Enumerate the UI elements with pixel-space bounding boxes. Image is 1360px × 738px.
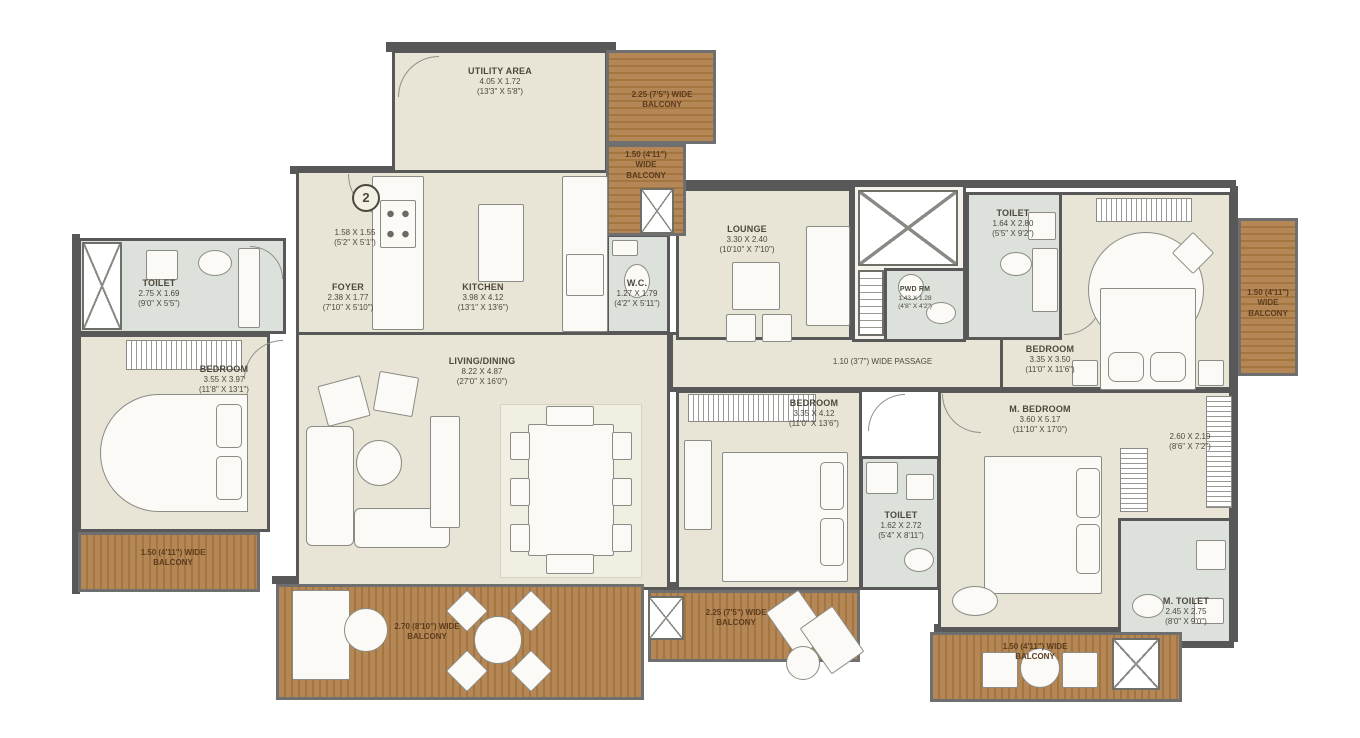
- floor-plan: 2 UTILITY AREA 4.05 X 1.72 (13'3" X 5'8"…: [0, 0, 1360, 738]
- washbasin: [612, 240, 638, 256]
- pillow: [820, 518, 844, 566]
- kitchen-island: [478, 204, 524, 282]
- room-dim-ft: (9'0" X 5'5"): [120, 299, 198, 309]
- dining-chair: [612, 432, 632, 460]
- room-dim-ft: (5'4" X 8'11"): [864, 531, 938, 541]
- balcony-label-line: 2.70 (8'10") WIDE: [368, 622, 486, 632]
- room-name: BEDROOM: [766, 398, 862, 409]
- tv-unit: [430, 416, 460, 528]
- room-dim-ft: (4'2" X 5'11"): [606, 299, 668, 309]
- dining-chair: [510, 432, 530, 460]
- pillow: [216, 404, 242, 448]
- bench: [952, 586, 998, 616]
- duct-shaft: [82, 242, 122, 330]
- washbasin: [146, 250, 178, 280]
- room-dim-m: 3.55 X 3.97: [178, 375, 270, 385]
- balcony-label-line: BALCONY: [108, 558, 238, 568]
- room-label-pwd-rm: PWD RM 1.43 X 1.28 (4'8" X 4'2"): [886, 286, 944, 311]
- wardrobe: [1206, 396, 1232, 508]
- room-label-lounge: LOUNGE 3.30 X 2.40 (10'10" X 7'10"): [702, 224, 792, 255]
- refrigerator: [566, 254, 604, 296]
- room-dim-ft: (11'0" X 13'6"): [766, 419, 862, 429]
- room-name: BEDROOM: [1002, 344, 1098, 355]
- room-dim-ft: (11'0" X 11'6"): [1002, 365, 1098, 375]
- room-dim-ft: (4'8" X 4'2"): [886, 303, 944, 311]
- room-dim-m: 2.38 X 1.77: [308, 293, 388, 303]
- ottoman: [726, 314, 756, 342]
- balcony-label-bottom-center: 2.25 (7'5") WIDE BALCONY: [680, 608, 792, 629]
- room-dim-m: 8.22 X 4.87: [428, 367, 536, 377]
- dining-chair: [546, 406, 594, 426]
- dining-chair: [510, 524, 530, 552]
- room-dim-m: 2.60 X 2.19: [1146, 432, 1234, 442]
- dining-chair: [612, 524, 632, 552]
- balcony-label-line: 1.50 (4'11"): [1240, 288, 1296, 298]
- room-name: TOILET: [864, 510, 938, 521]
- desk: [684, 440, 712, 530]
- nightstand: [1198, 360, 1224, 386]
- balcony-label-top-lower: 1.50 (4'11") WIDE BALCONY: [608, 150, 684, 181]
- outdoor-table: [786, 646, 820, 680]
- balcony-label-line: BALCONY: [972, 652, 1098, 662]
- room-label-toilet-left: TOILET 2.75 X 1.69 (9'0" X 5'5"): [120, 278, 198, 309]
- balcony-label-line: WIDE: [608, 160, 684, 170]
- balcony-label-line: WIDE: [1240, 298, 1296, 308]
- room-dim-m: 1.43 X 1.28: [886, 295, 944, 303]
- room-label-entrance-lobby: 1.58 X 1.55 (5'2" X 5'1"): [312, 228, 398, 248]
- room-dim-m: 1.64 X 2.80: [972, 219, 1054, 229]
- wardrobe: [1096, 198, 1192, 222]
- balcony-label-line: BALCONY: [612, 100, 712, 110]
- room-name: TOILET: [120, 278, 198, 289]
- balcony-label-bottom-right: 1.50 (4'11") WIDE BALCONY: [972, 642, 1098, 663]
- coffee-table: [356, 440, 402, 486]
- bath-counter: [238, 248, 260, 328]
- room-dim-ft: (8'0" X 9'0"): [1138, 617, 1234, 627]
- shower: [1196, 540, 1226, 570]
- room-dim-m: 1.58 X 1.55: [312, 228, 398, 238]
- dining-chair: [612, 478, 632, 506]
- passage-label: 1.10 (3'7") WIDE PASSAGE: [795, 357, 970, 366]
- stairs: [858, 270, 884, 336]
- toilet-fixture: [198, 250, 232, 276]
- room-dim-m: 4.05 X 1.72: [430, 77, 570, 87]
- balcony-label-top-upper: 2.25 (7'5") WIDE BALCONY: [612, 90, 712, 111]
- balcony-label-line: 1.50 (4'11"): [608, 150, 684, 160]
- elevator-shaft: [858, 190, 958, 266]
- room-label-wc: W.C. 1.27 X 1.79 (4'2" X 5'11"): [606, 278, 668, 309]
- room-name: LIVING/DINING: [428, 356, 536, 367]
- wardrobe: [1120, 448, 1148, 512]
- sofa: [806, 226, 850, 326]
- sofa: [306, 426, 354, 546]
- pillow: [1150, 352, 1186, 382]
- room-dim-m: 1.62 X 2.72: [864, 521, 938, 531]
- room-label-bedroom-middle: BEDROOM 3.35 X 4.12 (11'0" X 13'6"): [766, 398, 862, 429]
- armchair: [373, 371, 419, 417]
- room-dim-m: 3.60 X 5.17: [984, 415, 1096, 425]
- balcony-label-line: BALCONY: [680, 618, 792, 628]
- balcony-label-left: 1.50 (4'11") WIDE BALCONY: [108, 548, 238, 569]
- room-name: UTILITY AREA: [430, 66, 570, 77]
- room-label-toilet-middle: TOILET 1.62 X 2.72 (5'4" X 8'11"): [864, 510, 938, 541]
- room-dim-ft: (5'2" X 5'1"): [312, 238, 398, 248]
- balcony-label-line: 1.50 (4'11") WIDE: [972, 642, 1098, 652]
- room-dim-ft: (8'6" X 7'2"): [1146, 442, 1234, 452]
- room-name: LOUNGE: [702, 224, 792, 235]
- room-dim-m: 1.27 X 1.79: [606, 289, 668, 299]
- room-dim-ft: (27'0" X 16'0"): [428, 377, 536, 387]
- room-name: M. TOILET: [1138, 596, 1234, 607]
- pillow: [820, 462, 844, 510]
- room-dim-ft: (11'10" X 17'0"): [984, 425, 1096, 435]
- room-label-living-dining: LIVING/DINING 8.22 X 4.87 (27'0" X 16'0"…: [428, 356, 536, 387]
- room-name: KITCHEN: [438, 282, 528, 293]
- armchair: [732, 262, 780, 310]
- duct-shaft: [640, 188, 674, 234]
- toilet-fixture: [1000, 252, 1032, 276]
- room-label-m-toilet: M. TOILET 2.45 X 2.75 (8'0" X 9'0"): [1138, 596, 1234, 627]
- room-label-kitchen: KITCHEN 3.98 X 4.12 (13'1" X 13'6"): [438, 282, 528, 313]
- room-name: M. BEDROOM: [984, 404, 1096, 415]
- ottoman: [762, 314, 792, 342]
- room-dim-ft: (11'8" X 13'1"): [178, 385, 270, 395]
- balcony-label-line: 2.25 (7'5") WIDE: [612, 90, 712, 100]
- pillow: [1076, 524, 1100, 574]
- door-arc: [868, 394, 905, 431]
- shower: [866, 462, 898, 494]
- room-name: PWD RM: [886, 286, 944, 295]
- bath-counter: [1032, 248, 1058, 312]
- balcony-label-line: BALCONY: [1240, 309, 1296, 319]
- balcony-label-bottom-left: 2.70 (8'10") WIDE BALCONY: [368, 622, 486, 643]
- room-label-utility: UTILITY AREA 4.05 X 1.72 (13'3" X 5'8"): [430, 66, 570, 97]
- balcony-label-line: BALCONY: [368, 632, 486, 642]
- room-label-bedroom-right: BEDROOM 3.35 X 3.50 (11'0" X 11'6"): [1002, 344, 1098, 375]
- room-dim-ft: (7'10" X 5'10"): [308, 303, 388, 313]
- room-name: BEDROOM: [178, 364, 270, 375]
- room-label-toilet-top-right: TOILET 1.64 X 2.80 (5'5" X 9'2"): [972, 208, 1054, 239]
- duct-shaft: [648, 596, 684, 640]
- room-name: W.C.: [606, 278, 668, 289]
- room-dim-ft: (10'10" X 7'10"): [702, 245, 792, 255]
- dining-chair: [510, 478, 530, 506]
- room-dim-m: 2.45 X 2.75: [1138, 607, 1234, 617]
- room-dim-m: 3.98 X 4.12: [438, 293, 528, 303]
- room-name: FOYER: [308, 282, 388, 293]
- room-dim-m: 3.35 X 4.12: [766, 409, 862, 419]
- room-label-dress-area: 2.60 X 2.19 (8'6" X 7'2"): [1146, 432, 1234, 452]
- room-dim-m: 3.30 X 2.40: [702, 235, 792, 245]
- dining-table: [528, 424, 614, 556]
- room-label-foyer: FOYER 2.38 X 1.77 (7'10" X 5'10"): [308, 282, 388, 313]
- pillow: [1108, 352, 1144, 382]
- room-label-m-bedroom: M. BEDROOM 3.60 X 5.17 (11'10" X 17'0"): [984, 404, 1096, 435]
- balcony-label-line: BALCONY: [608, 171, 684, 181]
- room-dim-m: 3.35 X 3.50: [1002, 355, 1098, 365]
- room-dim-m: 2.75 X 1.69: [120, 289, 198, 299]
- pillow: [1076, 468, 1100, 518]
- room-dim-ft: (5'5" X 9'2"): [972, 229, 1054, 239]
- pillow: [216, 456, 242, 500]
- balcony-label-line: 2.25 (7'5") WIDE: [680, 608, 792, 618]
- unit-number-marker: 2: [352, 184, 380, 212]
- outdoor-sofa: [292, 590, 350, 680]
- washbasin: [906, 474, 934, 500]
- balcony-label-right: 1.50 (4'11") WIDE BALCONY: [1240, 288, 1296, 319]
- room-label-bedroom-left: BEDROOM 3.55 X 3.97 (11'8" X 13'1"): [178, 364, 270, 395]
- room-name: TOILET: [972, 208, 1054, 219]
- room-dim-ft: (13'1" X 13'6"): [438, 303, 528, 313]
- room-dim-ft: (13'3" X 5'8"): [430, 87, 570, 97]
- balcony-label-line: 1.50 (4'11") WIDE: [108, 548, 238, 558]
- duct-shaft: [1112, 638, 1160, 690]
- dining-chair: [546, 554, 594, 574]
- toilet-fixture: [904, 548, 934, 572]
